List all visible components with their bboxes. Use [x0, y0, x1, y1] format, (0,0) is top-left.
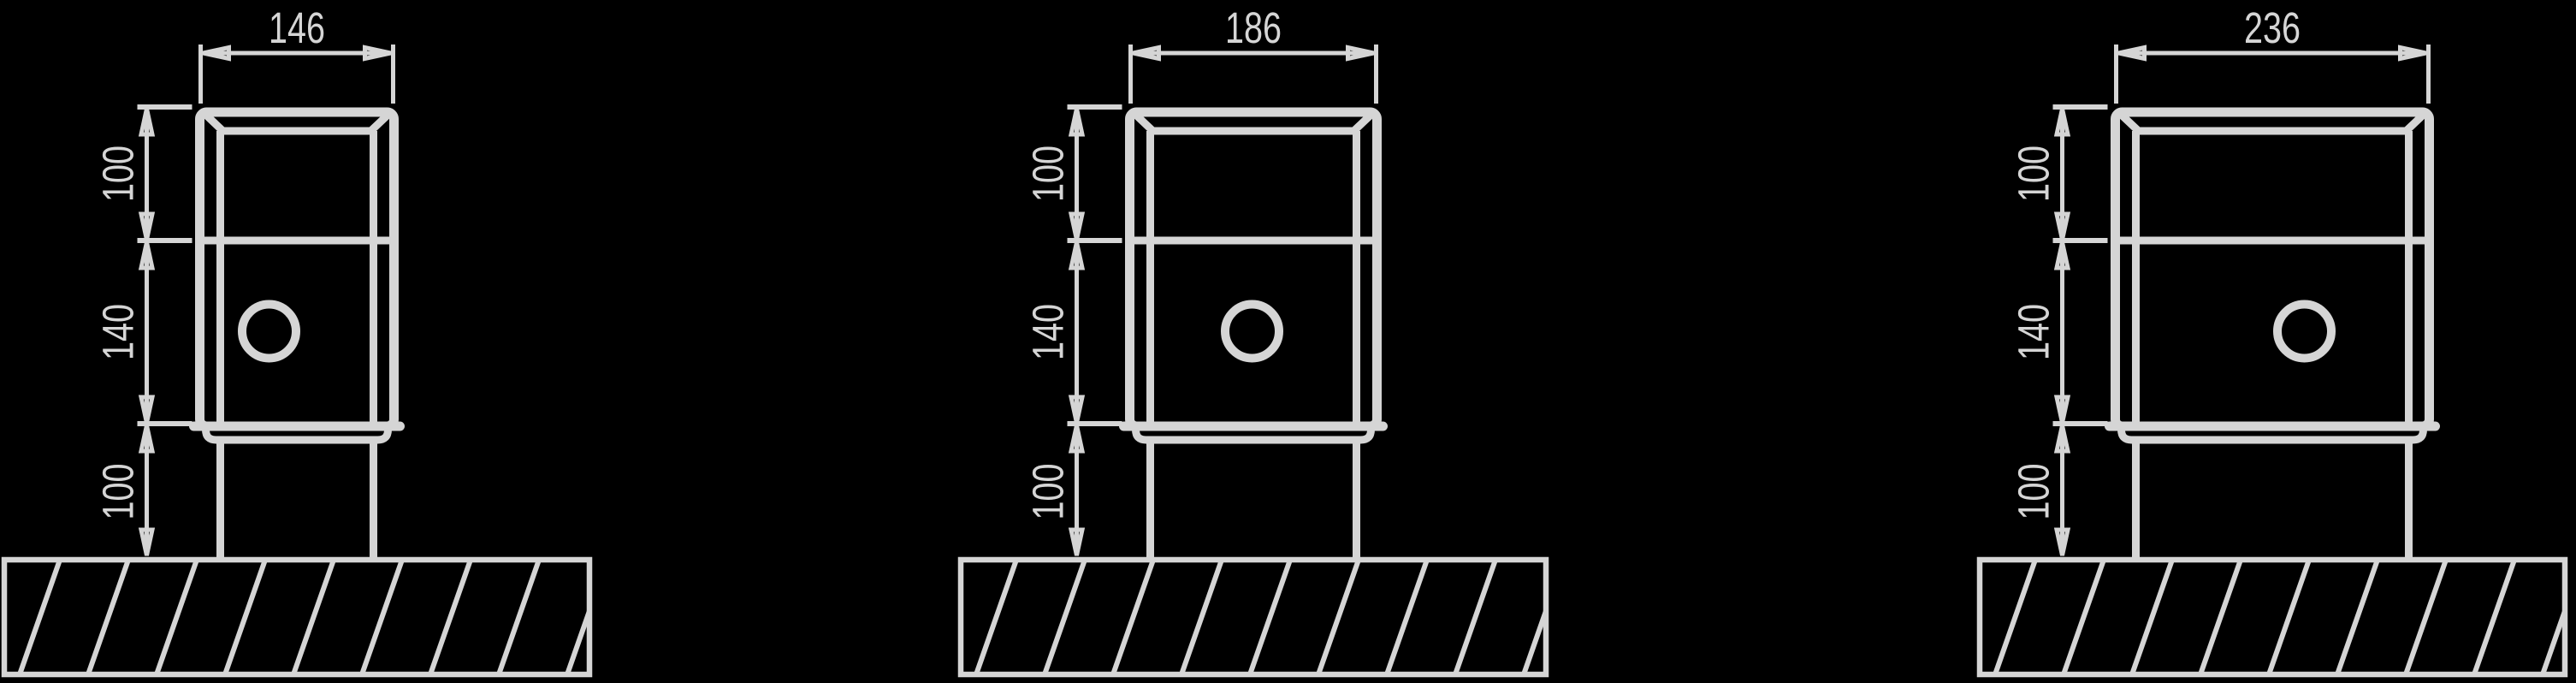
- hatch-line: [1181, 560, 1222, 674]
- hatch-line: [88, 560, 128, 674]
- hatch-line: [20, 560, 60, 674]
- width-dimension: 236: [2117, 3, 2429, 104]
- ground-hatch: [20, 560, 744, 674]
- hatch-line: [2543, 560, 2576, 674]
- hatch-line: [2269, 560, 2309, 674]
- figure-variant-236: 236100140100: [1980, 3, 2576, 674]
- top-bevel-left: [1137, 116, 1152, 130]
- hatch-line: [1455, 560, 1495, 674]
- hatch-line: [1592, 560, 1632, 674]
- height-dimension-label-2: 100: [1024, 464, 1073, 520]
- width-dimension-label: 186: [1225, 3, 1282, 52]
- height-dimension-label-0: 100: [2010, 146, 2058, 202]
- hatch-line: [1250, 560, 1290, 674]
- circle-detail: [242, 305, 296, 359]
- height-dimensions: 100140100: [2010, 107, 2108, 555]
- body: [194, 112, 400, 440]
- top-bevel-right: [1355, 116, 1371, 130]
- hatch-line: [2474, 560, 2514, 674]
- hatch-line: [636, 560, 676, 674]
- hatch-line: [1318, 560, 1359, 674]
- hatch-line: [1045, 560, 1085, 674]
- base-collar: [2122, 430, 2424, 440]
- hatch-line: [157, 560, 197, 674]
- circle-detail: [2277, 305, 2331, 359]
- height-dimensions: 100140100: [1024, 107, 1122, 555]
- hatch-line: [2064, 560, 2104, 674]
- hatch-line: [1113, 560, 1153, 674]
- body: [1124, 112, 1383, 440]
- body-outline: [2116, 112, 2430, 426]
- hatch-line: [362, 560, 402, 674]
- hatch-line: [976, 560, 1016, 674]
- width-dimension: 146: [201, 3, 394, 104]
- hatch-line: [1387, 560, 1427, 674]
- hatch-line: [2132, 560, 2172, 674]
- hatch-line: [2406, 560, 2446, 674]
- ground: [1980, 560, 2576, 674]
- ground-hatch: [1995, 560, 2576, 674]
- height-dimension-label-0: 100: [1024, 146, 1073, 202]
- hatch-line: [1995, 560, 2035, 674]
- hatch-line: [499, 560, 539, 674]
- height-dimension-label-1: 140: [94, 304, 143, 360]
- hatch-line: [293, 560, 334, 674]
- post: [221, 437, 374, 562]
- figure-variant-186: 186100140100: [961, 3, 1701, 674]
- ground: [961, 560, 1701, 674]
- top-bevel-right: [2407, 116, 2423, 130]
- height-dimension-label-2: 100: [2010, 464, 2058, 520]
- hatch-line: [430, 560, 471, 674]
- circle-detail: [1225, 305, 1279, 359]
- hatch-line: [1661, 560, 1701, 674]
- ground: [4, 560, 744, 674]
- width-dimension-label: 236: [2244, 3, 2301, 52]
- width-dimension-label: 146: [269, 3, 325, 52]
- height-dimensions: 100140100: [94, 107, 192, 555]
- base-collar: [1136, 430, 1371, 440]
- top-bevel-left: [2123, 116, 2138, 130]
- post: [1151, 437, 1357, 562]
- top-bevel-left: [207, 116, 222, 130]
- drawing-canvas: 146100140100186100140100236100140100: [0, 0, 2576, 683]
- body-outline: [1130, 112, 1377, 426]
- figure-variant-146: 146100140100: [4, 3, 744, 674]
- hatch-line: [2337, 560, 2378, 674]
- body-outline: [200, 112, 394, 426]
- technical-drawing: 146100140100186100140100236100140100: [0, 0, 2576, 683]
- hatch-line: [225, 560, 265, 674]
- hatch-line: [704, 560, 744, 674]
- height-dimension-label-2: 100: [94, 464, 143, 520]
- height-dimension-label-1: 140: [1024, 304, 1073, 360]
- body: [2110, 112, 2436, 440]
- ground-hatch: [976, 560, 1701, 674]
- top-bevel-right: [372, 116, 388, 130]
- width-dimension: 186: [1131, 3, 1377, 104]
- hatch-line: [2200, 560, 2241, 674]
- base-collar: [206, 430, 388, 440]
- height-dimension-label-0: 100: [94, 146, 143, 202]
- height-dimension-label-1: 140: [2010, 304, 2058, 360]
- post: [2136, 437, 2409, 562]
